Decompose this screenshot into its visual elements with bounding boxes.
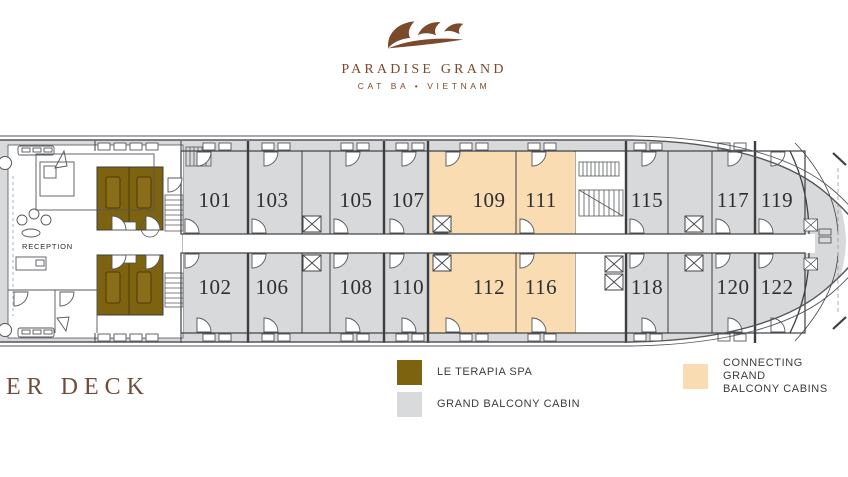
cabin-105: 105: [340, 188, 373, 212]
cabin-122: 122: [761, 275, 794, 299]
cabin-117: 117: [717, 188, 749, 212]
legend-item-grand-balcony-cabin: GRAND BALCONY CABIN: [397, 392, 580, 417]
connecting-color-swatch: [683, 364, 708, 389]
cabin-110: 110: [392, 275, 424, 299]
legend-connecting-line1: CONNECTING GRAND: [723, 357, 803, 382]
deck-title: ER DECK: [6, 374, 150, 401]
cabin-102: 102: [199, 275, 232, 299]
grand-balcony-color-swatch: [397, 392, 422, 417]
spa-color-swatch: [397, 360, 422, 385]
legend-connecting-label: CONNECTING GRAND BALCONY CABINS: [723, 357, 848, 396]
cabin-101: 101: [199, 188, 232, 212]
cabin-103: 103: [256, 188, 289, 212]
cabin-107: 107: [392, 188, 425, 212]
deck-plan-page: PARADISE GRAND CAT BA • VIETNAM: [0, 0, 848, 477]
reception-label: RECEPTION: [22, 242, 73, 251]
legend-left: LE TERAPIA SPA GRAND BALCONY CABIN: [397, 360, 580, 424]
legend-right: CONNECTING GRAND BALCONY CABINS: [683, 357, 848, 403]
legend-spa-label: LE TERAPIA SPA: [437, 366, 532, 379]
cabin-109: 109: [473, 188, 506, 212]
cabin-119: 119: [761, 188, 793, 212]
cabin-116: 116: [525, 275, 557, 299]
cabin-120: 120: [717, 275, 750, 299]
legend-connecting-line2: BALCONY CABINS: [723, 383, 828, 395]
cabin-108: 108: [340, 275, 373, 299]
cabin-106: 106: [256, 275, 289, 299]
cabin-115: 115: [631, 188, 663, 212]
legend-item-spa: LE TERAPIA SPA: [397, 360, 580, 385]
legend-item-connecting-cabins: CONNECTING GRAND BALCONY CABINS: [683, 357, 848, 396]
legend-grand-label: GRAND BALCONY CABIN: [437, 398, 580, 411]
cabin-111: 111: [525, 188, 556, 212]
cabin-112: 112: [473, 275, 505, 299]
cabin-118: 118: [631, 275, 663, 299]
